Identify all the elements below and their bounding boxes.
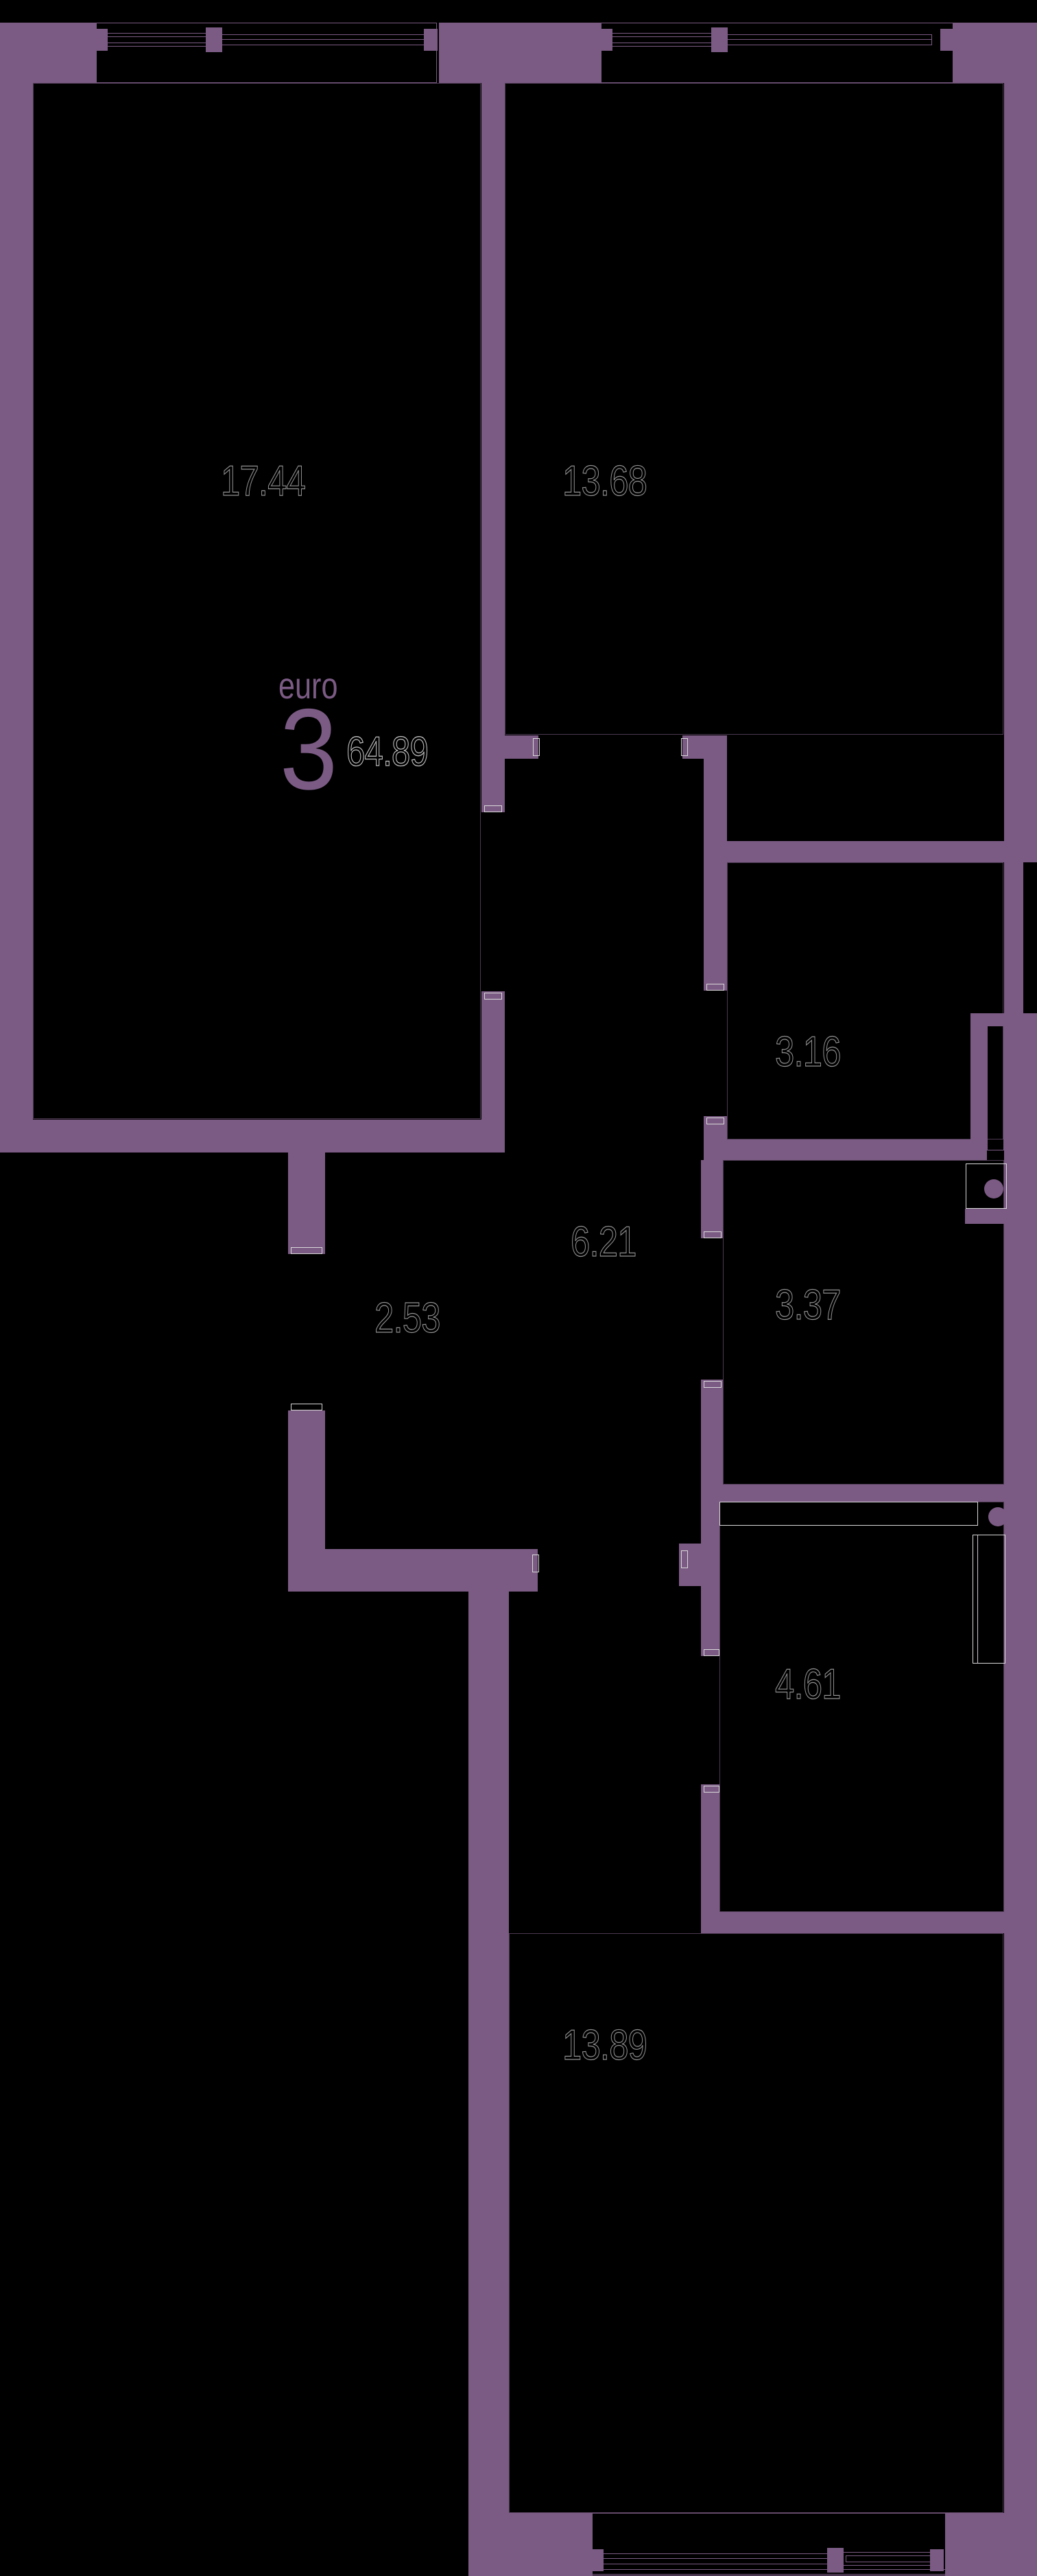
room-area-label-entry: 2.53 (374, 1294, 440, 1343)
door-frame-icon (532, 1555, 539, 1572)
wall-segment (1004, 23, 1037, 2576)
wall-segment (468, 1571, 509, 2576)
door-frame-icon (704, 1649, 719, 1656)
window-glass-line (217, 39, 429, 40)
wall-segment (481, 991, 505, 1153)
door-frame-icon (291, 1247, 322, 1254)
wall-segment (0, 23, 33, 1153)
wall-recess (1023, 862, 1037, 1013)
door-frame-icon (681, 1550, 688, 1568)
window-frame-icon (96, 23, 437, 83)
wall-segment (0, 1120, 505, 1153)
door-frame-icon (484, 805, 502, 812)
plumbing-riser-icon (984, 1179, 1003, 1198)
window-post (590, 2549, 604, 2571)
wall-segment (701, 1485, 1005, 1502)
room-interior-outline (509, 1933, 1003, 2513)
room-interior-outline (723, 1160, 1004, 1485)
fixture-outline (719, 1502, 978, 1526)
wall-segment (701, 1380, 723, 1502)
door-frame-icon (704, 1231, 722, 1238)
wall-segment (970, 1026, 987, 1160)
wall-segment (481, 83, 505, 812)
wall-segment (970, 1013, 1037, 1026)
wall-segment (288, 1143, 325, 1254)
wall-segment (704, 1139, 970, 1160)
wall-segment (701, 1912, 1007, 1933)
room-interior-outline (505, 83, 1003, 735)
wall-segment (468, 2513, 592, 2576)
window-frame-icon (846, 2555, 931, 2562)
room-interior-outline (727, 862, 1003, 1139)
window-frame-icon (601, 23, 953, 83)
window-frame-icon (597, 2553, 833, 2564)
window-post (206, 27, 222, 52)
door-frame-icon (681, 738, 688, 756)
window-glass-line (597, 2558, 833, 2559)
window-post (711, 27, 728, 52)
wall-segment (965, 1209, 1005, 1224)
window-post (940, 29, 954, 51)
room-area-label-hall: 6.21 (571, 1218, 636, 1266)
window-frame-icon (106, 36, 206, 43)
door-frame-icon (484, 993, 502, 1000)
door-frame-icon (291, 1404, 322, 1410)
wall-segment (439, 23, 601, 83)
window-glass-line (722, 39, 932, 40)
room-interior-outline (33, 83, 481, 1119)
window-post (424, 29, 438, 51)
door-frame-icon (706, 1118, 724, 1124)
window-glass-line (592, 2574, 946, 2575)
wall-segment (704, 735, 727, 991)
door-frame-icon (706, 984, 724, 991)
window-frame-icon (987, 1026, 1004, 1150)
fixture-detail-line (977, 1535, 978, 1664)
wall-segment (724, 841, 1004, 862)
floor-plan-canvas: 17.44 13.68 3.16 6.21 3.37 2.53 4.61 13.… (0, 0, 1037, 2576)
door-frame-icon (704, 1786, 719, 1793)
wall-segment (701, 1502, 719, 1656)
window-frame-icon (592, 2513, 946, 2576)
window-frame-icon (611, 36, 712, 43)
window-post (827, 2548, 844, 2573)
window-glass-line (592, 2569, 946, 2570)
window-post (94, 29, 108, 51)
window-post (599, 29, 612, 51)
wall-segment (946, 2513, 1037, 2576)
wall-segment (701, 1784, 719, 1933)
door-frame-icon (704, 1381, 722, 1388)
window-post (930, 2549, 944, 2571)
plumbing-riser-icon (988, 1507, 1008, 1526)
door-frame-icon (533, 738, 540, 756)
window-frame-icon (722, 34, 932, 45)
room-interior-outline (719, 1502, 1004, 1912)
wall-segment (701, 1160, 723, 1238)
window-frame-icon (217, 34, 429, 45)
